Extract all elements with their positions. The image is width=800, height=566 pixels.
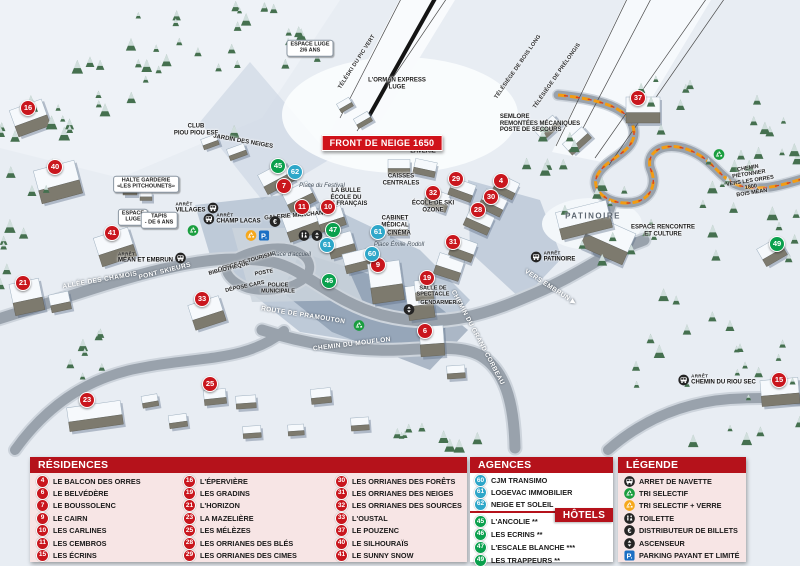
legend-item-label: LE SILHOURAÏS — [352, 539, 408, 548]
residences-header: RÉSIDENCES — [30, 457, 467, 473]
legend-item-label: TRI SELECTIF — [639, 489, 688, 498]
legend-item-number: 62 — [474, 498, 487, 511]
legend-item-number: 15 — [36, 549, 49, 562]
legend-item-label: DISTRIBUTEUR DE BILLETS — [639, 526, 738, 535]
legend-item-number: 49 — [474, 554, 487, 566]
map-marker-4[interactable]: 4 — [493, 173, 509, 189]
legend-item: 32LES ORRIANES DES SOURCES — [335, 500, 467, 512]
legend-item-number: 4 — [36, 475, 49, 488]
legend-item-label: L'HORIZON — [200, 501, 240, 510]
legend-item-label: LE CAIRN — [53, 514, 87, 523]
map-marker-23[interactable]: 23 — [79, 392, 95, 408]
legend-item-number: 19 — [183, 487, 196, 500]
legend-item: TRI SELECTIF — [624, 487, 746, 499]
legend-item-label: TRI SELECTIF + VERRE — [639, 501, 722, 510]
legend-item: 37LE POUZENC — [335, 525, 467, 537]
legend-item-number: 28 — [183, 537, 196, 550]
legend-item-number: 31 — [335, 487, 348, 500]
legend-item-number: 29 — [183, 549, 196, 562]
map-marker-37[interactable]: 37 — [630, 90, 646, 106]
hotels-header: HÔTELS — [555, 508, 613, 522]
legend-item: 49LES TRAPPEURS ** — [474, 554, 613, 566]
legend-item: 29LES ORRIANES DES CIMES — [183, 549, 335, 561]
toilette-icon — [624, 513, 635, 524]
legend-item-label: NEIGE ET SOLEIL — [491, 500, 553, 509]
map-marker-29[interactable]: 29 — [448, 171, 464, 187]
parking-icon: P. — [624, 550, 635, 561]
resort-map-page: TÉLÉSKI DU PIC VERTTÉLÉSIÈGE DE BOIS LON… — [0, 0, 800, 566]
legend-agences-hotels-panel: AGENCES IMMOBILIÈRES 60CJM TRANSIMO61LOG… — [470, 457, 613, 562]
legend-item: 30LES ORRIANES DES FORÊTS — [335, 475, 467, 487]
map-marker-33[interactable]: 33 — [194, 291, 210, 307]
map-marker-62[interactable]: 62 — [287, 164, 303, 180]
legend-item-label: LES ECRINS ** — [491, 530, 543, 539]
legend-item-number: 37 — [335, 524, 348, 537]
legend-item-label: LA MAZELIÈRE — [200, 514, 254, 523]
legend-item-number: 45 — [474, 515, 487, 528]
legend-item: 31LES ORRIANES DES NEIGES — [335, 487, 467, 499]
legend-item-number: 16 — [183, 475, 196, 488]
legend-item-label: LES CEMBROS — [53, 539, 107, 548]
legend-item: ARRET DE NAVETTE — [624, 475, 746, 487]
legend-item-number: 40 — [335, 537, 348, 550]
legend-item-label: LES TRAPPEURS ** — [491, 556, 560, 565]
recycle-verre-icon — [624, 500, 635, 511]
map-marker-16[interactable]: 16 — [20, 100, 36, 116]
bus-icon — [624, 476, 635, 487]
legend-item: 40LE SILHOURAÏS — [335, 537, 467, 549]
map-marker-61[interactable]: 61 — [319, 237, 335, 253]
map-marker-6[interactable]: 6 — [417, 323, 433, 339]
legend-item-label: LE BELVÉDÈRE — [53, 489, 108, 498]
legend-item-label: LES ÉCRINS — [53, 551, 97, 560]
legend-item: ASCENSEUR — [624, 537, 746, 549]
front-de-neige-banner: FRONT DE NEIGE 1650 — [322, 135, 443, 151]
legend-item: 23LA MAZELIÈRE — [183, 512, 335, 524]
legend-item-label: LOGEVAC IMMOBILIER — [491, 488, 572, 497]
legend-item-label: L'OUSTAL — [352, 514, 388, 523]
legend-item: TOILETTE — [624, 512, 746, 524]
legende-header: LÉGENDE — [618, 457, 746, 473]
legend-item-number: 30 — [335, 475, 348, 488]
legend-item-label: LES MÉLÈZES — [200, 526, 251, 535]
legend-item-number: 46 — [474, 528, 487, 541]
legend-item-label: LES ORRIANES DES CIMES — [200, 551, 297, 560]
legend-item-number: 32 — [335, 499, 348, 512]
legend-item: 9LE CAIRN — [36, 512, 183, 524]
legend-symbols-panel: LÉGENDE ARRET DE NAVETTETRI SELECTIFTRI … — [618, 457, 746, 562]
map-marker-31[interactable]: 31 — [445, 234, 461, 250]
legend-item-number: 11 — [36, 537, 49, 550]
map-marker-25[interactable]: 25 — [202, 376, 218, 392]
agences-header: AGENCES IMMOBILIÈRES — [470, 457, 613, 473]
map-marker-45[interactable]: 45 — [270, 158, 286, 174]
legend-item: 10LES CARLINES — [36, 525, 183, 537]
map-marker-11[interactable]: 11 — [294, 199, 310, 215]
map-marker-47[interactable]: 47 — [325, 222, 341, 238]
legend-item-number: 47 — [474, 541, 487, 554]
legend-item: 7LE BOUSSOLENC — [36, 500, 183, 512]
legend-item: 61LOGEVAC IMMOBILIER — [474, 487, 613, 499]
legend-item-label: LES ORRIANES DES FORÊTS — [352, 477, 455, 486]
map-marker-61[interactable]: 61 — [370, 224, 386, 240]
legend-item-label: LE POUZENC — [352, 526, 399, 535]
map-marker-28[interactable]: 28 — [470, 202, 486, 218]
map-marker-32[interactable]: 32 — [425, 185, 441, 201]
legend-item: 16L'ÉPERVIÈRE — [183, 475, 335, 487]
legend-item-label: CJM TRANSIMO — [491, 476, 547, 485]
legend-item-label: LE BOUSSOLENC — [53, 501, 116, 510]
legende-list: ARRET DE NAVETTETRI SELECTIFTRI SELECTIF… — [618, 473, 746, 562]
legend-item-number: 7 — [36, 499, 49, 512]
legend-item-number: 33 — [335, 512, 348, 525]
legend-item: 4LE BALCON DES ORRES — [36, 475, 183, 487]
legend-item-label: L'ANCOLIE ** — [491, 517, 538, 526]
legend-item: 6LE BELVÉDÈRE — [36, 487, 183, 499]
legend-item: 19LES GRADINS — [183, 487, 335, 499]
legend-item: 47L'ESCALE BLANCHE *** — [474, 541, 613, 554]
legend-item-label: L'ESCALE BLANCHE *** — [491, 543, 575, 552]
map-marker-46[interactable]: 46 — [321, 273, 337, 289]
legend-item-label: ARRET DE NAVETTE — [639, 477, 712, 486]
legend-item-label: LES CARLINES — [53, 526, 107, 535]
legend-item-number: 21 — [183, 499, 196, 512]
euro-icon: € — [624, 525, 635, 536]
legend-item: 28LES ORRIANES DES BLÉS — [183, 537, 335, 549]
legend-item-label: TOILETTE — [639, 514, 674, 523]
legend-item-label: L'ÉPERVIÈRE — [200, 477, 248, 486]
recycle-icon — [624, 488, 635, 499]
agences-list: 60CJM TRANSIMO61LOGEVAC IMMOBILIER62NEIG… — [470, 473, 613, 510]
legend-item-label: LE SUNNY SNOW — [352, 551, 414, 560]
legend-item: 11LES CEMBROS — [36, 537, 183, 549]
residences-list: 4LE BALCON DES ORRES6LE BELVÉDÈRE7LE BOU… — [30, 473, 467, 562]
legend-item: 21L'HORIZON — [183, 500, 335, 512]
map-marker-15[interactable]: 15 — [771, 372, 787, 388]
legend-item-label: PARKING PAYANT ET LIMITÉ — [639, 551, 740, 560]
legend-item: 33L'OUSTAL — [335, 512, 467, 524]
legend-item: 25LES MÉLÈZES — [183, 525, 335, 537]
legend-item: P.PARKING PAYANT ET LIMITÉ — [624, 549, 746, 561]
legend-item-label: ASCENSEUR — [639, 539, 685, 548]
legend-item-number: 10 — [36, 524, 49, 537]
legend-item-label: LES ORRIANES DES SOURCES — [352, 501, 462, 510]
svg-text:P.: P. — [627, 551, 633, 560]
legend-residences-panel: RÉSIDENCES 4LE BALCON DES ORRES6LE BELVÉ… — [30, 457, 467, 562]
hotels-list: 45L'ANCOLIE **46LES ECRINS **47L'ESCALE … — [470, 514, 613, 566]
legend-item: 60CJM TRANSIMO — [474, 475, 613, 487]
legend-item-number: 6 — [36, 487, 49, 500]
map-marker-41[interactable]: 41 — [104, 225, 120, 241]
map-marker-40[interactable]: 40 — [47, 159, 63, 175]
map-marker-30[interactable]: 30 — [483, 189, 499, 205]
map-marker-10[interactable]: 10 — [320, 199, 336, 215]
legend-item-label: LES GRADINS — [200, 489, 250, 498]
map-marker-7[interactable]: 7 — [276, 178, 292, 194]
map-marker-19[interactable]: 19 — [419, 270, 435, 286]
legend-item-number: 23 — [183, 512, 196, 525]
map-marker-21[interactable]: 21 — [15, 275, 31, 291]
legend-item-number: 25 — [183, 524, 196, 537]
legend-item-label: LES ORRIANES DES BLÉS — [200, 539, 293, 548]
map-marker-49[interactable]: 49 — [769, 236, 785, 252]
map-marker-60[interactable]: 60 — [364, 246, 380, 262]
ascenseur-icon — [624, 538, 635, 549]
legend-item: 15LES ÉCRINS — [36, 549, 183, 561]
legend-item: TRI SELECTIF + VERRE — [624, 500, 746, 512]
svg-text:€: € — [628, 528, 632, 535]
legend-item-number: 9 — [36, 512, 49, 525]
legend-item: €DISTRIBUTEUR DE BILLETS — [624, 525, 746, 537]
legend-item-number: 41 — [335, 549, 348, 562]
legend-item: 46LES ECRINS ** — [474, 528, 613, 541]
legend-item-label: LES ORRIANES DES NEIGES — [352, 489, 453, 498]
legend-item-label: LE BALCON DES ORRES — [53, 477, 141, 486]
legend-item: 41LE SUNNY SNOW — [335, 549, 467, 561]
